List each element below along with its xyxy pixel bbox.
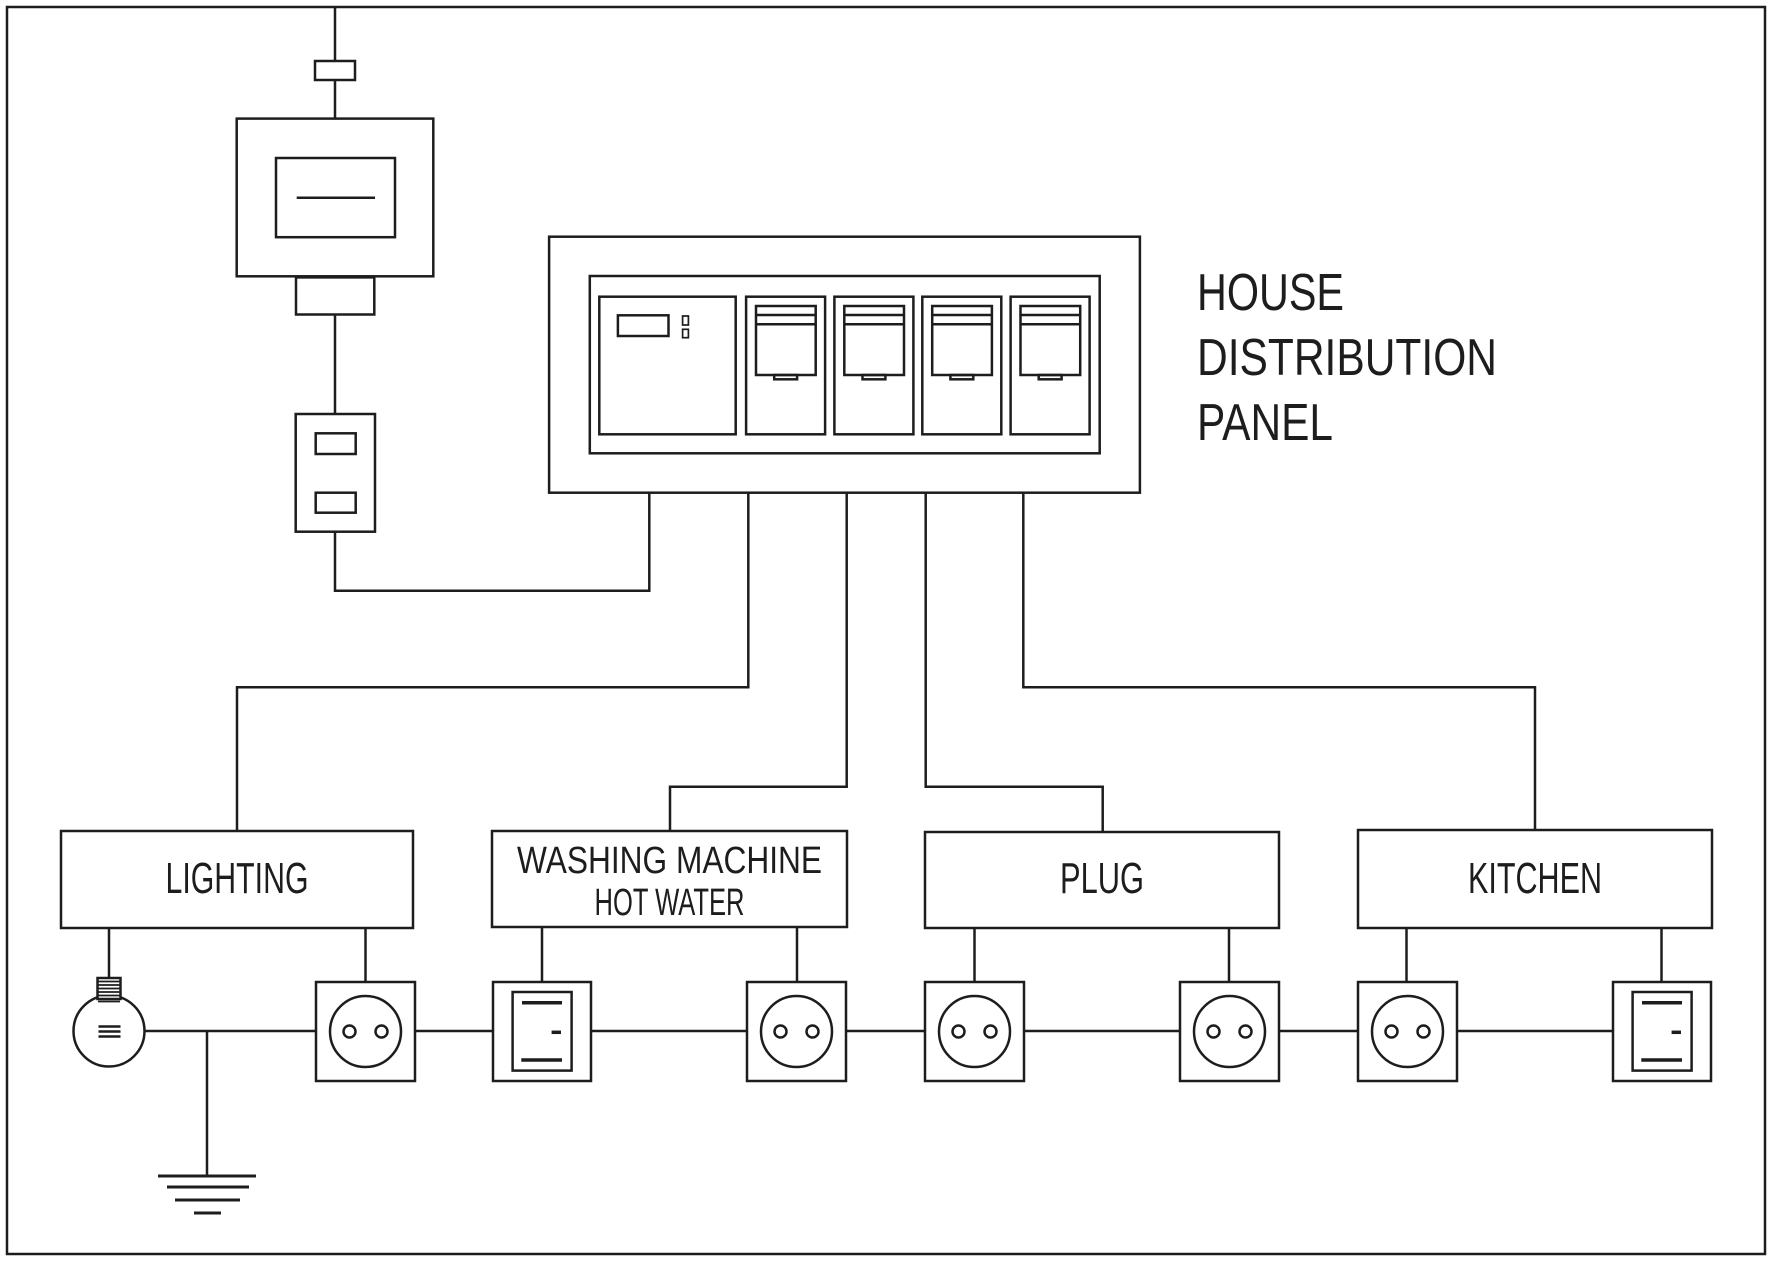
panel-title-line2: DISTRIBUTION <box>1197 329 1497 387</box>
device-row <box>74 978 1712 1213</box>
circuit-feed-wires <box>237 493 1535 832</box>
circuit-label-kitchen: KITCHEN <box>1468 854 1602 903</box>
circuit-label-washing-machine-line2: HOT WATER <box>595 882 745 924</box>
distribution-panel <box>549 237 1140 493</box>
panel-title-line3: PANEL <box>1197 394 1333 452</box>
circuit-label-washing-machine-line1: WASHING MACHINE <box>517 840 822 882</box>
circuit-boxes: LIGHTING WASHING MACHINE HOT WATER PLUG … <box>61 830 1712 928</box>
wall-socket-icon-1 <box>316 982 415 1081</box>
wire-kitchen-feed <box>1023 493 1535 830</box>
pole-transformer-icon <box>237 119 434 315</box>
wall-socket-icon-3 <box>925 982 1024 1081</box>
wire-washing-machine-feed <box>670 493 847 831</box>
wire-lighting-feed <box>237 493 748 831</box>
panel-title: HOUSE DISTRIBUTION PANEL <box>1197 264 1497 452</box>
wall-socket-icon-5 <box>1358 982 1457 1081</box>
light-bulb-icon <box>74 978 145 1067</box>
insulator-icon <box>315 61 355 80</box>
rocker-switch-icon-2 <box>1613 982 1711 1081</box>
circuit-label-lighting: LIGHTING <box>166 854 309 903</box>
panel-supply-wire <box>335 493 649 591</box>
bulb-screw-base <box>98 978 121 1002</box>
electrical-wiring-diagram: HOUSE DISTRIBUTION PANEL LIGHTING WASHIN… <box>0 0 1772 1261</box>
wire-plug-feed <box>926 493 1103 832</box>
wall-socket-icon-4 <box>1180 982 1279 1081</box>
earth-ground-icon <box>158 1176 256 1213</box>
energy-meter-icon <box>296 414 375 532</box>
circuit-label-plug: PLUG <box>1060 854 1144 903</box>
panel-title-line1: HOUSE <box>1197 264 1344 322</box>
wall-socket-icon-2 <box>747 982 846 1081</box>
rocker-switch-icon-1 <box>493 982 591 1081</box>
diagram-canvas: HOUSE DISTRIBUTION PANEL LIGHTING WASHIN… <box>0 0 1772 1261</box>
